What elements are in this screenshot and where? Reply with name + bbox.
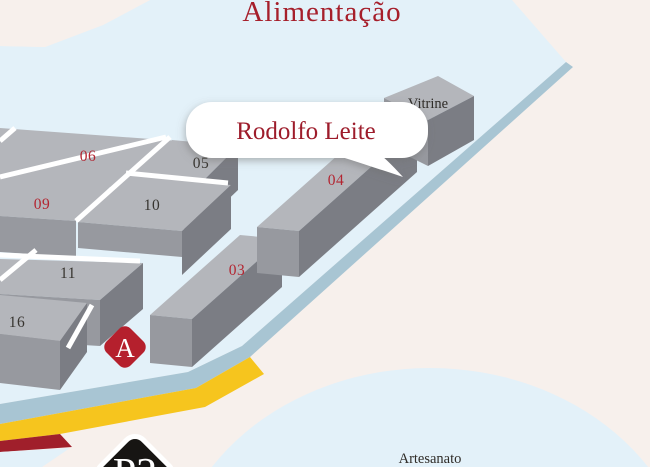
booth-04-number: 04 [328,172,345,189]
tooltip-text: Rodolfo Leite [236,118,376,145]
parking-badge-label: P2 [113,451,157,467]
booth-04-front [257,227,299,277]
booth-03-front [150,315,192,367]
entrance-badge-label: A [115,333,135,363]
booth-09-front [0,216,76,257]
booth-16-front [0,334,60,390]
booth-06-number: 06 [80,148,97,165]
booth-10-number: 10 [144,197,161,214]
map-title: Alimentação [242,0,401,28]
booth-05-number: 05 [193,155,210,172]
artesanato-label: Artesanato [399,451,462,467]
booth-09-number: 09 [34,196,51,213]
booth-11-number: 11 [60,265,76,282]
venue-map: 06 05 09 10 11 16 03 04 Vitrine Artesana… [0,0,650,467]
booth-03-number: 03 [229,262,246,279]
booth-16-number: 16 [9,314,26,331]
